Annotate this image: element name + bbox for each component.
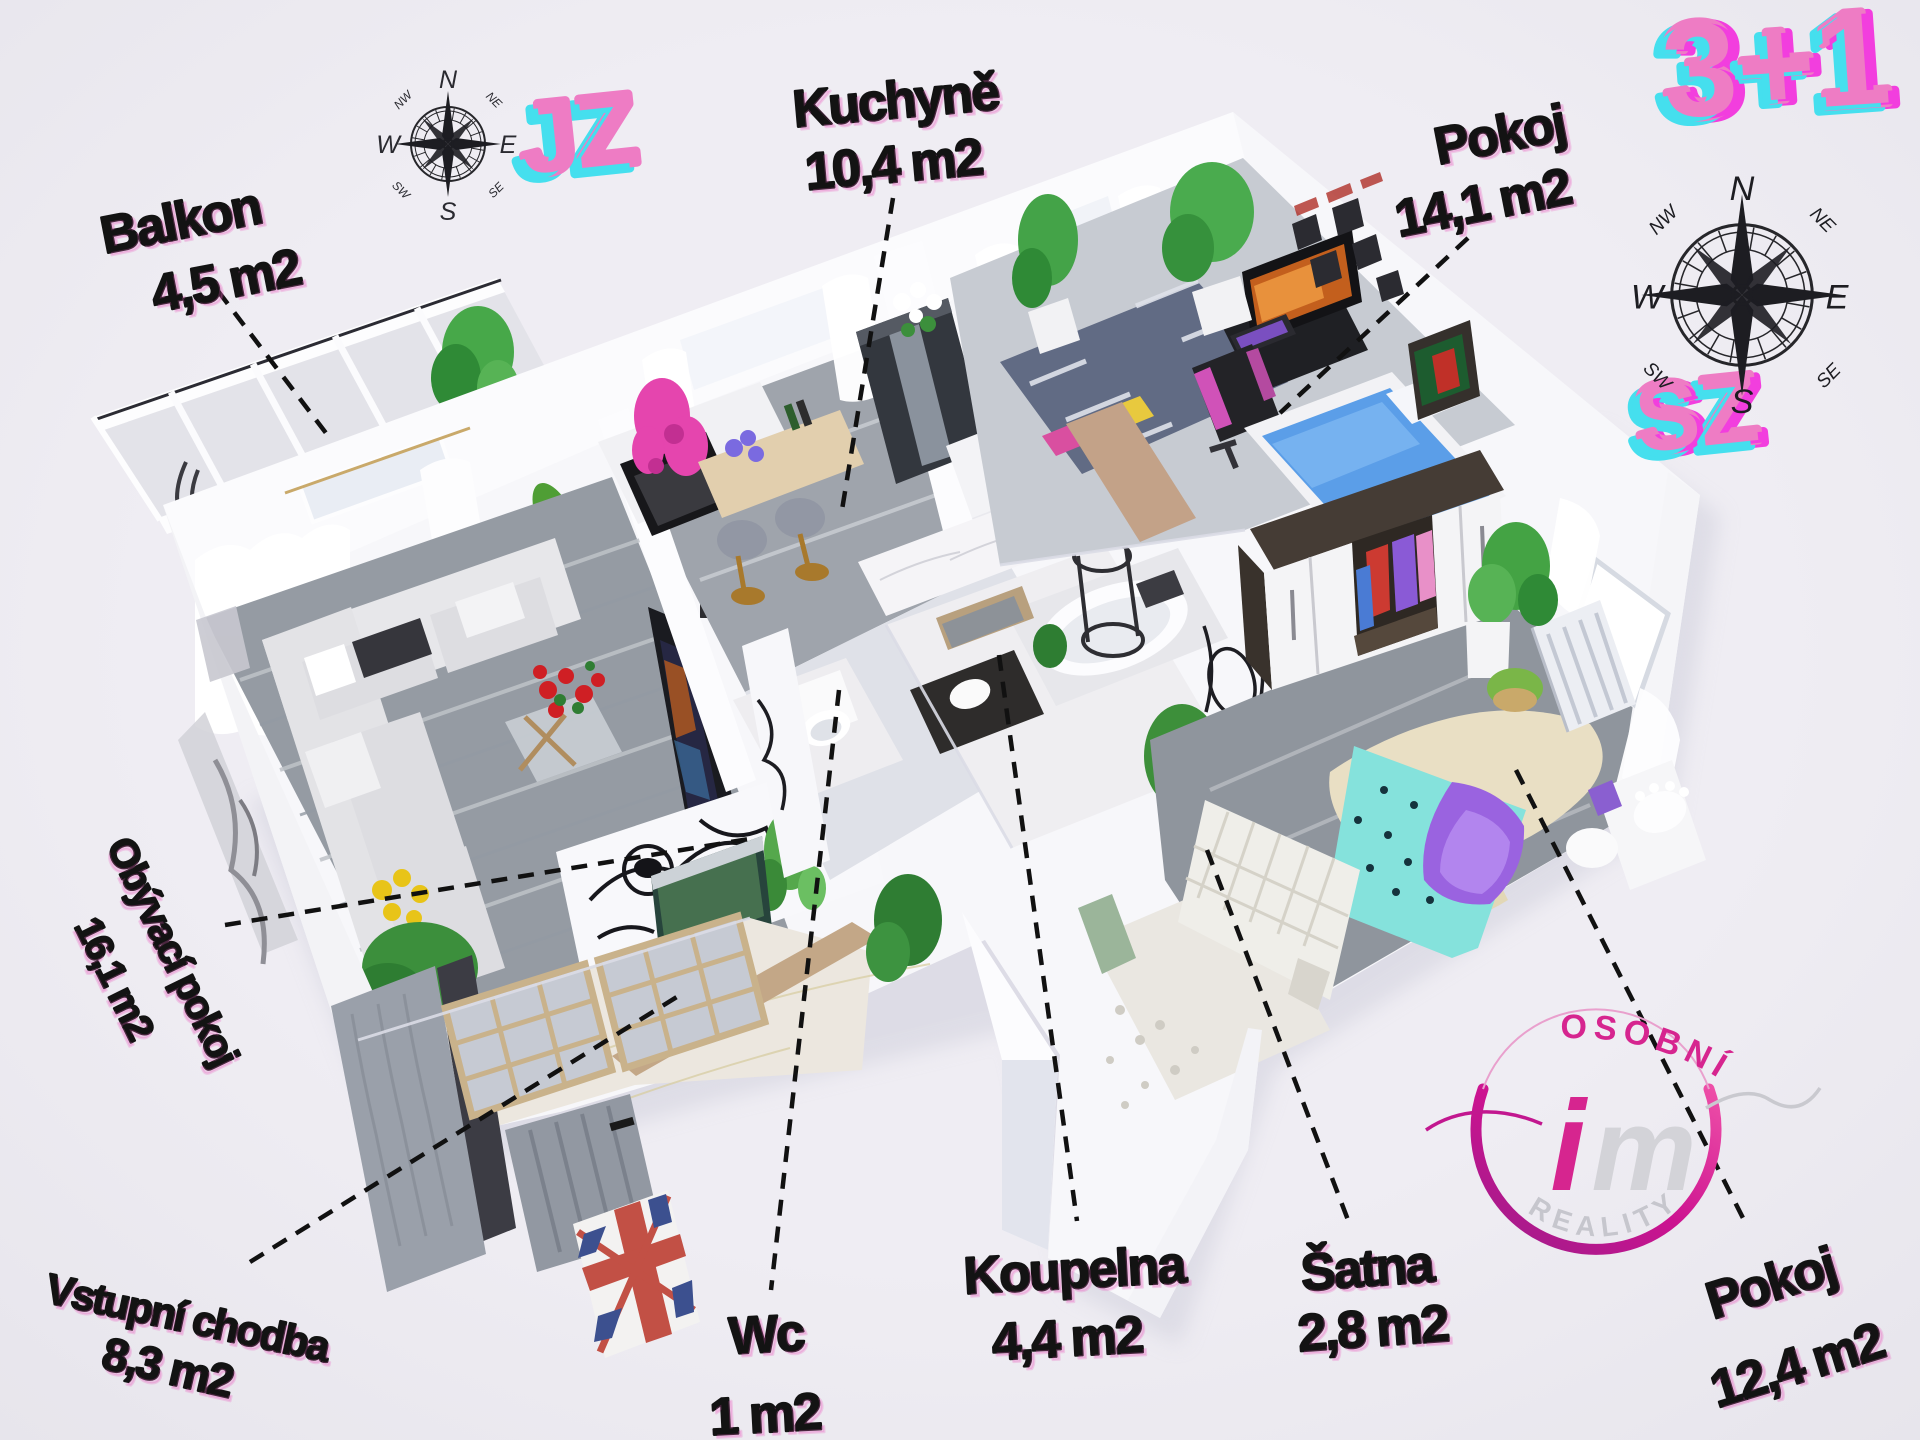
svg-text:1 m2: 1 m2 bbox=[708, 1383, 821, 1440]
svg-text:2,8 m2: 2,8 m2 bbox=[1296, 1295, 1450, 1363]
svg-text:N: N bbox=[1730, 170, 1755, 208]
svg-text:W: W bbox=[376, 131, 402, 159]
svg-text:S: S bbox=[440, 198, 457, 226]
svg-text:m: m bbox=[1592, 1084, 1697, 1216]
svg-text:S: S bbox=[1731, 383, 1754, 421]
svg-text:i: i bbox=[1550, 1075, 1588, 1218]
svg-text:JZ: JZ bbox=[515, 72, 643, 196]
svg-text:E: E bbox=[1826, 278, 1850, 316]
svg-text:3+1: 3+1 bbox=[1657, 0, 1894, 147]
svg-text:W: W bbox=[1631, 278, 1666, 316]
svg-text:Koupelna: Koupelna bbox=[962, 1236, 1189, 1306]
svg-text:E: E bbox=[500, 131, 517, 159]
svg-text:4,4 m2: 4,4 m2 bbox=[991, 1306, 1144, 1372]
svg-text:Wc: Wc bbox=[728, 1304, 806, 1366]
svg-text:Šatna: Šatna bbox=[1299, 1234, 1437, 1302]
svg-text:N: N bbox=[439, 66, 458, 94]
